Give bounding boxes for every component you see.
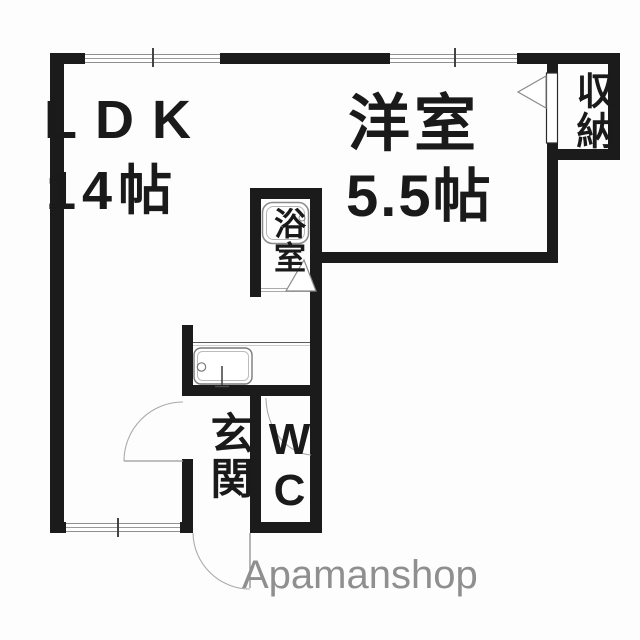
window-center-tick (454, 48, 456, 67)
yoshitsu-size-label: 5.5帖 (346, 168, 493, 226)
closet-door-leaf (547, 73, 558, 143)
wall-hall-top (182, 385, 322, 396)
ldk-size-label: 14帖 (46, 164, 178, 218)
watermark: Apamanshop (242, 553, 478, 598)
genkan-room-label: 玄関 (197, 411, 259, 501)
wall-yoshitsu-right (547, 143, 558, 263)
floorplan-canvas: LDK 14帖 洋室 5.5帖 浴室 収納 玄関 WC Apamanshop (0, 0, 640, 640)
wc-room-label: WC (264, 415, 314, 517)
wall-closet-door-jamb (547, 63, 558, 73)
wall-bath-left (250, 188, 261, 297)
window-center-tick (152, 48, 154, 67)
wall-wc-bottom (250, 522, 322, 533)
ldk-room-label: LDK (44, 93, 209, 147)
bath-threshold-line (261, 289, 310, 292)
wall-top-middle-segment (220, 53, 390, 64)
sink-faucet-icon (215, 366, 229, 387)
closet-door-swing-icon (518, 76, 546, 108)
window-bottom-left (66, 523, 180, 532)
kitchen-sink-icon (194, 348, 252, 384)
bath-room-label: 浴室 (265, 207, 311, 275)
wall-top-right-segment (517, 53, 620, 64)
yoshitsu-room-label: 洋室 (348, 94, 480, 156)
wall-yoshitsu-bottom (320, 252, 558, 263)
genkan-door-arc (124, 402, 183, 461)
kitchen-sink-inner-line (198, 352, 249, 381)
wall-bottom-left-corner (50, 522, 66, 533)
window-center-tick (117, 518, 119, 537)
sink-drain-icon (197, 363, 205, 371)
closet-room-label: 収納 (564, 71, 619, 151)
wall-genkan-left-lower (182, 459, 193, 533)
